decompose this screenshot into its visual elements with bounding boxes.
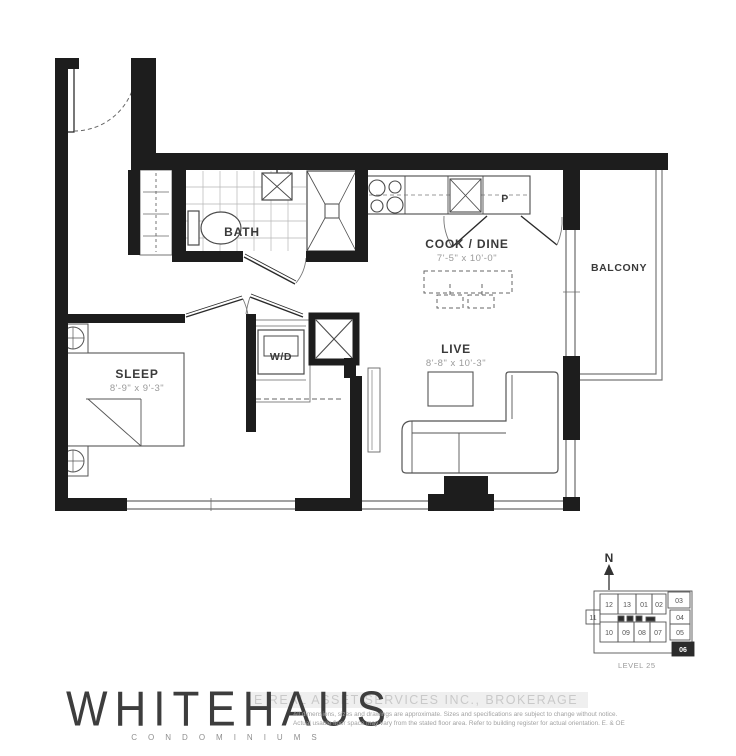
balcony-railing	[580, 170, 662, 380]
cook-dine-label: COOK / DINE	[425, 237, 508, 251]
floor-plan-drawing: SLEEP 8'-9" x 9'-3" BATH COOK / DINE 7'-…	[0, 0, 736, 756]
bath-door	[244, 254, 306, 284]
keyplan-unit: 09	[622, 630, 630, 637]
north-arrow-icon: N	[604, 551, 614, 590]
kitchen-island	[424, 271, 512, 308]
keyplan-unit: 13	[623, 602, 631, 609]
entry-closet	[140, 170, 172, 255]
bath-label: BATH	[224, 225, 260, 239]
coffee-table-icon	[428, 372, 473, 406]
keyplan-unit: 01	[640, 602, 648, 609]
kitchen-sink-icon	[450, 179, 481, 212]
disclaimer-text: All dimensions, sizes and drawings are a…	[293, 711, 713, 728]
shower-icon	[307, 171, 356, 251]
sleep-label: SLEEP	[115, 367, 158, 381]
keyplan-unit: 11	[589, 615, 596, 622]
keyplan-level-label: LEVEL 25	[618, 661, 656, 670]
keyplan-unit: 05	[676, 630, 684, 637]
sofa-icon	[402, 372, 558, 473]
disclaimer-line-2: Actual usable floor space may vary from …	[293, 720, 713, 729]
keyplan-unit: 08	[638, 630, 646, 637]
balcony-label: BALCONY	[591, 262, 647, 274]
sleep-dims: 8'-9" x 9'-3"	[110, 383, 164, 394]
keyplan-unit-highlighted: 06	[679, 647, 687, 654]
keyplan-unit: 04	[676, 615, 684, 622]
keyplan-unit: 02	[655, 602, 663, 609]
keyplan-unit: 10	[605, 630, 613, 637]
pantry-label: P	[501, 193, 509, 205]
logo-wordmark: WHITEHAUS	[66, 682, 393, 738]
wd-label: W/D	[270, 351, 292, 363]
tv-unit	[368, 368, 380, 452]
sleep-door	[186, 296, 248, 317]
bath-sink-icon	[262, 166, 292, 200]
wd-door	[246, 294, 303, 317]
keyplan-unit: 07	[654, 630, 662, 637]
live-dims: 8'-8" x 10'-3"	[426, 358, 486, 369]
cook-dine-dims: 7'-5" x 10'-0"	[437, 253, 497, 264]
disclaimer-line-1: All dimensions, sizes and drawings are a…	[293, 711, 713, 720]
entry-door	[67, 64, 136, 132]
north-label: N	[605, 551, 614, 565]
floorplan-page: SLEEP 8'-9" x 9'-3" BATH COOK / DINE 7'-…	[0, 0, 736, 756]
shaft	[312, 316, 356, 362]
live-label: LIVE	[441, 342, 471, 356]
keyplan-unit: 03	[675, 598, 683, 605]
keyplan-unit: 12	[605, 602, 613, 609]
